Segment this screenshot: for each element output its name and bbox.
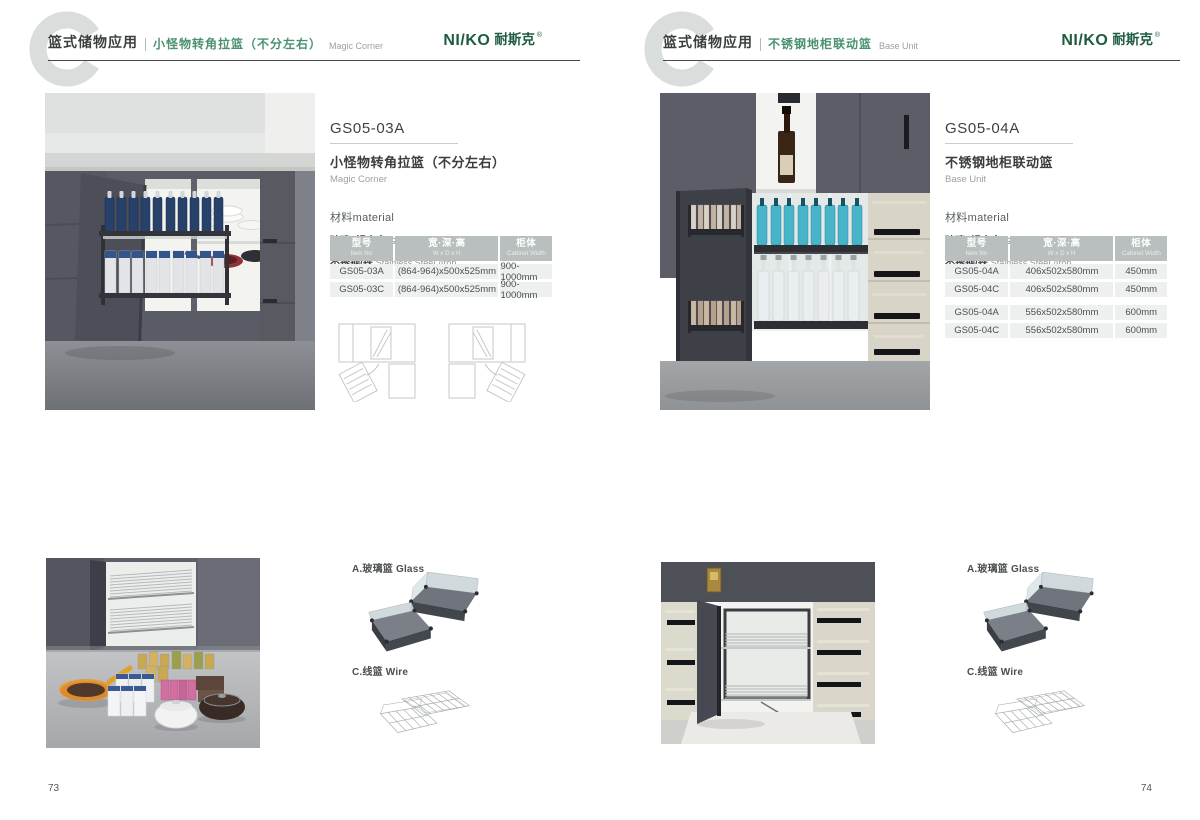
col-item-no: 型号Item No [945, 236, 1008, 261]
model-number: GS05-04A [945, 120, 1177, 137]
cell-cabinet: 450mm [1115, 264, 1167, 279]
logo-latin-text: NI/KO [443, 33, 490, 49]
wire-basket-image [963, 676, 1118, 740]
header-divider [145, 38, 146, 51]
cell-cabinet: 450mm [1115, 282, 1167, 297]
col-cabinet: 柜体Cabinet Width [1115, 236, 1167, 261]
col-wdh: 宽·深·高W x D x H [1010, 236, 1113, 261]
table-row: GS05-03C (864-964)x500x525mm 900-1000mm [330, 282, 552, 297]
cell-size: 406x502x580mm [1010, 282, 1113, 297]
cell-model: GS05-04C [945, 323, 1008, 338]
glass-basket-image [348, 568, 503, 658]
cell-size: 406x502x580mm [1010, 264, 1113, 279]
page-number: 74 [1141, 783, 1152, 794]
catalog-spread: 篮式储物应用 小怪物转角拉篮（不分左右） Magic Corner NI/KO … [0, 0, 1200, 820]
nisko-logo: NI/KO 耐斯克 ® [443, 33, 542, 49]
model-underline [330, 143, 458, 144]
cell-model: GS05-04C [945, 282, 1008, 297]
logo-chinese-text: 耐斯克 [1112, 33, 1153, 48]
material-title: 材料material [330, 209, 562, 225]
registered-mark: ® [537, 32, 542, 39]
cell-cabinet: 600mm [1115, 323, 1167, 338]
page-header: 篮式储物应用 小怪物转角拉篮（不分左右） Magic Corner [48, 34, 383, 52]
page-74: 篮式储物应用 不锈钢地柜联动篮 Base Unit NI/KO 耐斯克 ® [600, 0, 1200, 820]
base-unit-main-photo [660, 93, 930, 410]
model-underline [945, 143, 1073, 144]
corner-diagram-left [337, 320, 421, 402]
installation-diagrams [337, 320, 527, 402]
cell-model: GS05-03A [330, 264, 393, 279]
product-name-en: Magic Corner [330, 174, 562, 185]
header-product-cn: 不锈钢地柜联动篮 [768, 35, 872, 52]
spec-header-row: 型号Item No 宽·深·高W x D x H 柜体Cabinet Width [945, 236, 1167, 261]
header-rule [48, 60, 580, 61]
header-rule [663, 60, 1180, 61]
spec-table: 型号Item No 宽·深·高W x D x H 柜体Cabinet Width… [330, 236, 552, 300]
spec-table: 型号Item No 宽·深·高W x D x H 柜体Cabinet Width… [945, 236, 1167, 341]
logo-chinese-text: 耐斯克 [494, 33, 535, 48]
product-name-cn: 不锈钢地柜联动篮 [945, 152, 1177, 171]
registered-mark: ® [1155, 32, 1160, 39]
base-unit-detail-photo [661, 558, 875, 748]
col-item-no: 型号Item No [330, 236, 393, 261]
table-row: GS05-03A (864-964)x500x525mm 900-1000mm [330, 264, 552, 279]
header-category: 篮式储物应用 [48, 32, 138, 52]
material-title: 材料material [945, 209, 1177, 225]
magic-corner-detail-photo [46, 558, 260, 748]
header-product-en: Magic Corner [329, 41, 383, 52]
cell-cabinet: 900-1000mm [500, 264, 552, 279]
header-divider [760, 38, 761, 51]
table-row: GS05-04C 556x502x580mm 600mm [945, 323, 1167, 338]
cell-size: (864-964)x500x525mm [395, 282, 498, 297]
corner-diagram-right [443, 320, 527, 402]
cell-model: GS05-04A [945, 264, 1008, 279]
table-row: GS05-04A 406x502x580mm 450mm [945, 264, 1167, 279]
header-category: 篮式储物应用 [663, 32, 753, 52]
product-name-cn: 小怪物转角拉篮（不分左右） [330, 152, 562, 171]
header-product-cn: 小怪物转角拉篮（不分左右） [153, 35, 322, 52]
cell-size: (864-964)x500x525mm [395, 264, 498, 279]
product-name-en: Base Unit [945, 174, 1177, 185]
cell-cabinet: 600mm [1115, 305, 1167, 320]
logo-latin-text: NI/KO [1061, 33, 1108, 49]
cell-size: 556x502x580mm [1010, 305, 1113, 320]
cell-size: 556x502x580mm [1010, 323, 1113, 338]
cell-model: GS05-04A [945, 305, 1008, 320]
spec-header-row: 型号Item No 宽·深·高W x D x H 柜体Cabinet Width [330, 236, 552, 261]
col-wdh: 宽·深·高W x D x H [395, 236, 498, 261]
wire-basket-image [348, 676, 503, 740]
nisko-logo: NI/KO 耐斯克 ® [1061, 33, 1160, 49]
cell-cabinet: 900-1000mm [500, 282, 552, 297]
magic-corner-main-photo [45, 93, 315, 410]
header-product-en: Base Unit [879, 41, 918, 52]
table-row: GS05-04C 406x502x580mm 450mm [945, 282, 1167, 297]
page-header: 篮式储物应用 不锈钢地柜联动篮 Base Unit [663, 34, 918, 52]
cell-model: GS05-03C [330, 282, 393, 297]
model-number: GS05-03A [330, 120, 562, 137]
glass-basket-image [963, 568, 1118, 658]
page-number: 73 [48, 783, 59, 794]
page-73: 篮式储物应用 小怪物转角拉篮（不分左右） Magic Corner NI/KO … [0, 0, 600, 820]
col-cabinet: 柜体Cabinet Width [500, 236, 552, 261]
table-row: GS05-04A 556x502x580mm 600mm [945, 305, 1167, 320]
